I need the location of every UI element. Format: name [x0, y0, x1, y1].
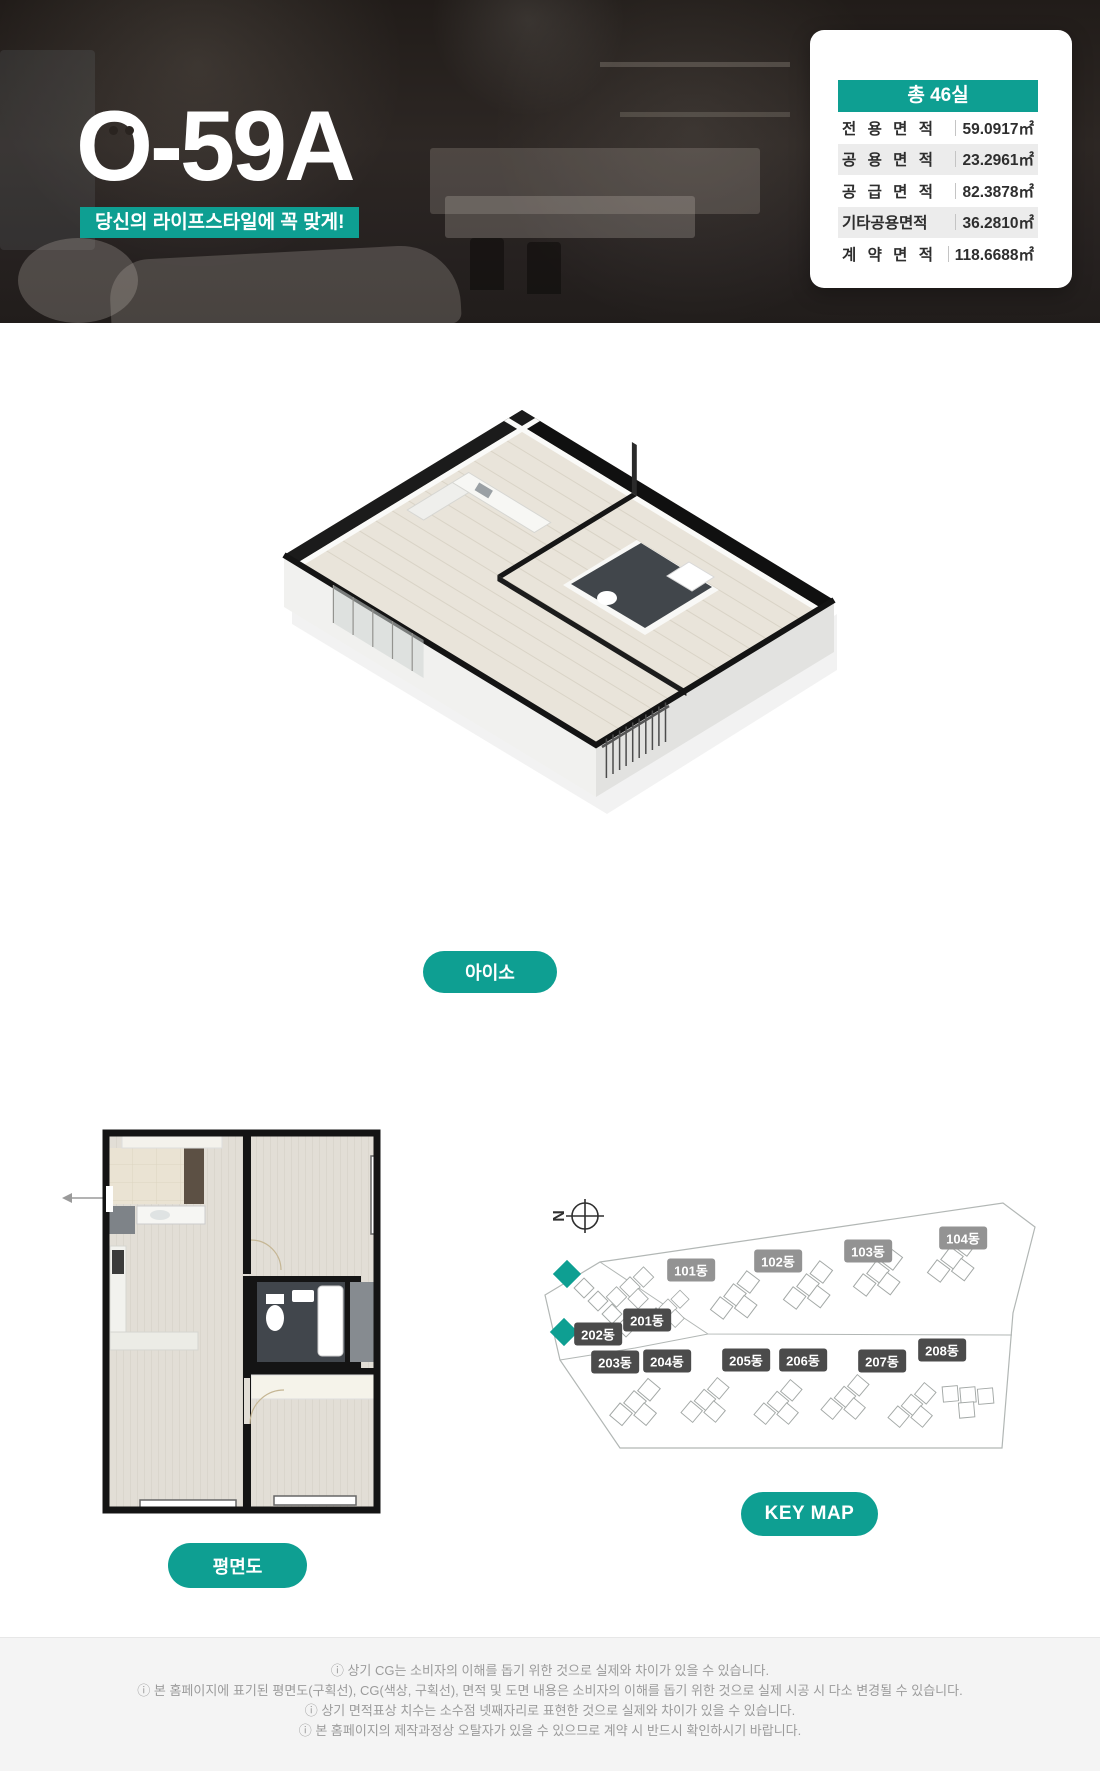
unit-type-page: O-59A 당신의 라이프스타일에 꼭 맞게! 총 46실 전 용 면 적59.…: [0, 0, 1100, 1771]
tagline-badge: 당신의 라이프스타일에 꼭 맞게!: [80, 207, 359, 238]
disclaimer-line: ⓘ 상기 CG는 소비자의 이해를 돕기 위한 것으로 실제와 차이가 있을 수…: [0, 1661, 1100, 1681]
disclaimer-line: ⓘ 본 홈페이지에 표기된 평면도(구획선), CG(색상, 구획선), 면적 …: [0, 1681, 1100, 1701]
area-label: 전 용 면 적: [838, 117, 955, 139]
building-label-chip: 101동: [667, 1259, 715, 1282]
area-summary-card: 총 46실 전 용 면 적59.0917㎡공 용 면 적23.2961㎡공 급 …: [810, 30, 1072, 288]
building-label-chip: 201동: [623, 1309, 671, 1332]
photo-sofa-shape: [108, 243, 462, 323]
title-o-dot: [125, 126, 134, 135]
building-label-chip: 104동: [939, 1227, 987, 1250]
divider: [948, 246, 949, 262]
disclaimer-line: ⓘ 상기 면적표상 치수는 소수점 넷째자리로 표현한 것으로 실제와 차이가 …: [0, 1701, 1100, 1721]
divider: [955, 151, 956, 167]
hero-photo-banner: O-59A 당신의 라이프스타일에 꼭 맞게! 총 46실 전 용 면 적59.…: [0, 0, 1100, 323]
keymap-button[interactable]: KEY MAP: [741, 1492, 878, 1536]
building-cluster: [606, 1267, 653, 1309]
building-label-chip: 103동: [844, 1240, 892, 1263]
photo-shelf-shape: [620, 112, 790, 117]
area-table-row: 전 용 면 적59.0917㎡: [838, 112, 1038, 144]
unit-type-title: O-59A: [76, 96, 353, 195]
total-units-header: 총 46실: [838, 80, 1038, 112]
compass-icon: N: [551, 1199, 604, 1233]
building-label-chip: 102동: [754, 1250, 802, 1273]
highlighted-building[interactable]: [553, 1260, 581, 1288]
building-label-chip: 202동: [574, 1323, 622, 1346]
building-unit: [588, 1291, 608, 1311]
building-label-chip: 203동: [591, 1351, 639, 1374]
building-cluster: [751, 1379, 805, 1427]
building-label-chip: 208동: [918, 1339, 966, 1362]
area-label: 기타공용면적: [838, 211, 955, 233]
divider: [955, 120, 956, 136]
area-table-row: 기타공용면적36.2810㎡: [838, 207, 1038, 239]
floorplan-2d-image: [60, 1128, 382, 1514]
area-value: 118.6688㎡: [955, 243, 1038, 265]
isometric-floorplan-image: [262, 402, 838, 908]
area-table-row: 계 약 면 적118.6688㎡: [838, 238, 1038, 270]
building-label-chip: 206동: [779, 1349, 827, 1372]
building-cluster: [678, 1377, 732, 1425]
building-cluster: [607, 1377, 663, 1428]
building-cluster: [885, 1382, 939, 1430]
area-value: 82.3878㎡: [962, 180, 1038, 202]
area-label: 공 급 면 적: [838, 180, 955, 202]
building-label-chip: 204동: [643, 1350, 691, 1373]
building-unit: [602, 1304, 622, 1324]
photo-table-shape: [18, 238, 138, 323]
svg-text:N: N: [551, 1210, 568, 1222]
area-table-row: 공 급 면 적82.3878㎡: [838, 175, 1038, 207]
area-value: 36.2810㎡: [962, 211, 1038, 233]
disclaimer-footer: ⓘ 상기 CG는 소비자의 이해를 돕기 위한 것으로 실제와 차이가 있을 수…: [0, 1637, 1100, 1771]
area-table-row: 공 용 면 적23.2961㎡: [838, 144, 1038, 176]
area-value: 59.0917㎡: [962, 117, 1038, 139]
area-value: 23.2961㎡: [962, 148, 1038, 170]
isometric-floorplan-svg: [262, 402, 838, 908]
photo-stool-shape: [470, 238, 504, 290]
title-o-dot: [109, 126, 118, 135]
photo-shelf-shape: [600, 62, 790, 67]
iso-view-button[interactable]: 아이소: [423, 951, 557, 993]
photo-stool-shape: [527, 242, 561, 294]
area-label: 공 용 면 적: [838, 148, 955, 170]
area-table: 전 용 면 적59.0917㎡공 용 면 적23.2961㎡공 급 면 적82.…: [838, 112, 1038, 270]
divider: [955, 183, 956, 199]
plan-view-button[interactable]: 평면도: [168, 1543, 307, 1588]
building-cluster: [818, 1374, 872, 1422]
building-label-chip: 205동: [722, 1349, 770, 1372]
disclaimer-line: ⓘ 본 홈페이지의 제작과정상 오탈자가 있을 수 있으므로 계약 시 반드시 …: [0, 1721, 1100, 1741]
building-cluster: [934, 1363, 1001, 1429]
keymap: N 101동102동103동104동201동202동203동204동205동20…: [540, 1190, 1040, 1455]
building-unit: [574, 1278, 594, 1298]
photo-kitchen-island-shape: [445, 196, 695, 238]
area-label: 계 약 면 적: [838, 243, 948, 265]
floorplan-2d-svg: [60, 1128, 382, 1514]
divider: [955, 214, 956, 230]
building-label-chip: 207동: [858, 1350, 906, 1373]
